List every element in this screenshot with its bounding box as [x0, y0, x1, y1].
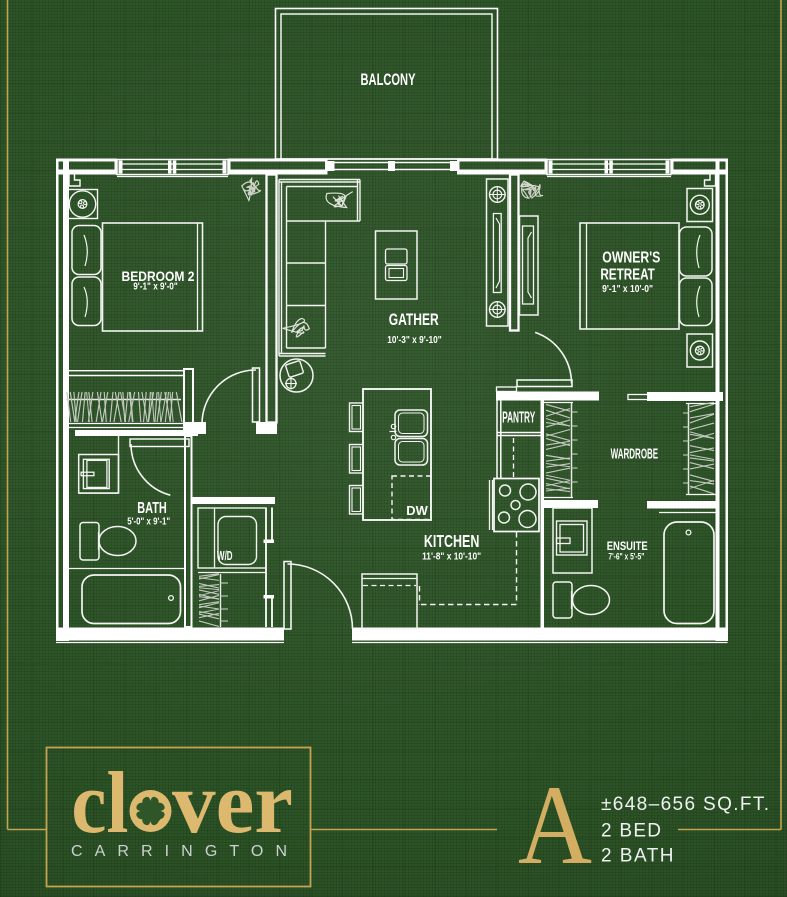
svg-text:RETREAT: RETREAT: [600, 266, 655, 283]
svg-text:9'-1" x 10'-0": 9'-1" x 10'-0": [602, 283, 653, 295]
svg-text:KITCHEN: KITCHEN: [424, 531, 480, 551]
svg-text:BATH: BATH: [137, 500, 167, 517]
svg-text:2 BED: 2 BED: [601, 821, 661, 842]
svg-text:GATHER: GATHER: [389, 310, 439, 329]
svg-text:ver: ver: [172, 755, 293, 852]
svg-text:7'-6" x 5'-5": 7'-6" x 5'-5": [608, 552, 644, 562]
svg-text:9'-1" x 9'-0": 9'-1" x 9'-0": [133, 282, 178, 293]
svg-text:±648–656 SQ.FT.: ±648–656 SQ.FT.: [601, 794, 769, 815]
svg-text:DW: DW: [406, 503, 428, 518]
svg-text:5'-0" x 9'-1": 5'-0" x 9'-1": [127, 517, 170, 528]
svg-text:2 BATH: 2 BATH: [601, 846, 674, 867]
svg-text:W/D: W/D: [217, 548, 233, 563]
svg-text:A: A: [518, 763, 592, 888]
svg-text:BALCONY: BALCONY: [361, 71, 416, 89]
svg-text:WARDROBE: WARDROBE: [611, 447, 659, 463]
svg-text:cl: cl: [71, 755, 128, 852]
svg-text:OWNER'S: OWNER'S: [602, 250, 660, 267]
svg-text:10'-3" x 9'-10": 10'-3" x 9'-10": [387, 334, 442, 346]
svg-text:PANTRY: PANTRY: [502, 409, 535, 426]
svg-text:11'-8" x 10'-10": 11'-8" x 10'-10": [422, 550, 481, 562]
